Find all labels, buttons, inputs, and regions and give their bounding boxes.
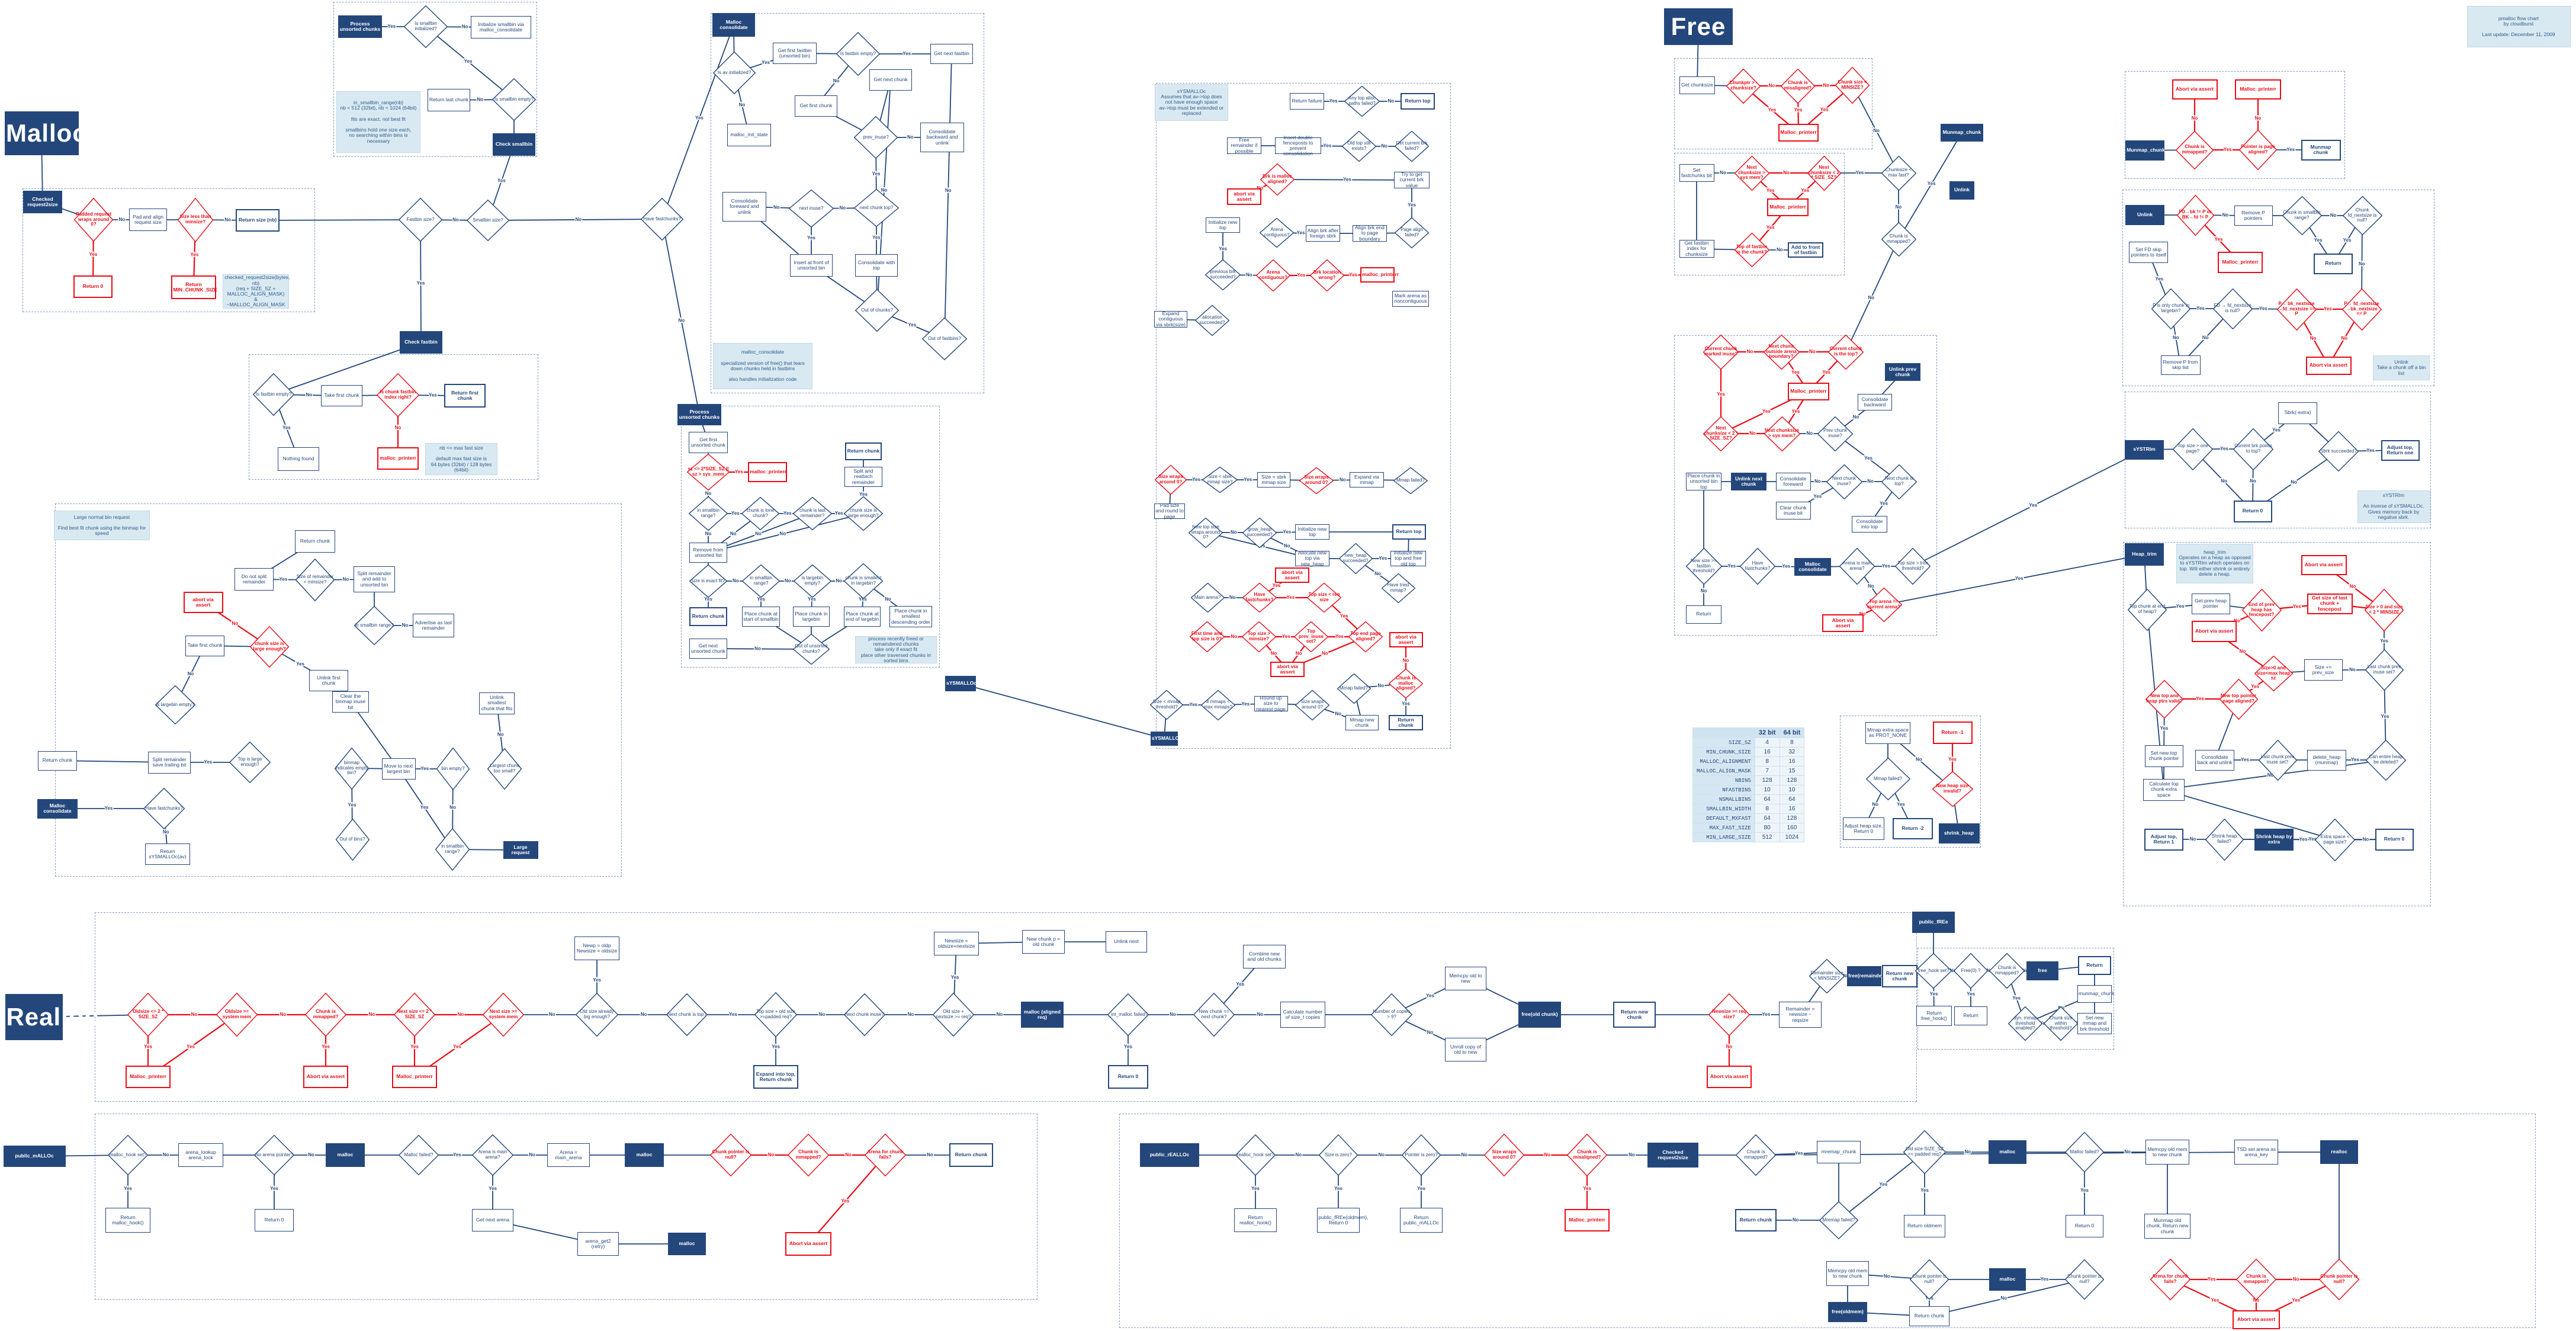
node-label: Split remainder and add to unsorted bin <box>354 570 394 588</box>
node-label: Remove from unsorted list <box>690 547 727 559</box>
decision-malloc-failed: Malloc failed? <box>2065 1132 2104 1172</box>
node-return-top: Return top <box>1401 93 1435 110</box>
svg-text:Yes: Yes <box>731 511 740 516</box>
node-pad-and-align-request-size: Pad and align request size <box>129 209 167 231</box>
decision-out-of-fastbins: Out of fastbins? <box>922 317 967 360</box>
node-label: binmap indicates empty bin? <box>335 760 369 777</box>
node-label: Chunk is misaligned? <box>1567 1149 1607 1160</box>
node-label: Calculate number of size_t copies <box>1281 1009 1324 1021</box>
node-label: Chunk in smallbin range? <box>2282 210 2321 221</box>
node-label: Munmap old chunk, Return new chunk <box>2145 1217 2190 1235</box>
constant-name: MIN_CHUNK_SIZE <box>1693 748 1755 757</box>
node-initialize-new-top: Initialize new top <box>1295 524 1329 540</box>
svg-text:No: No <box>1814 479 1821 484</box>
title-free: Free <box>1664 8 1733 45</box>
node-label: Unlink prev chunk <box>1886 366 1920 378</box>
svg-text:Yes: Yes <box>695 115 704 120</box>
node-label: next inuse? <box>789 206 834 212</box>
node-label: Malloc_printerr <box>393 1073 435 1080</box>
node-label: Get first fastbin (unsorted bin) <box>773 47 815 59</box>
node-place-chunk-in-largebin: Place chunk in largebin <box>793 607 830 627</box>
node-unlink-smallest-chunk-that-fits: Unlink smallest chunk that fits <box>479 692 515 714</box>
decision-free-0: Free(0) ? <box>1954 953 1988 989</box>
decision-int-malloc-failed: _int_malloc failed? <box>1107 993 1149 1036</box>
node-label: Return <box>2079 962 2110 968</box>
decision-can-entire-heap-be-deleted: Can entire heap be deleted? <box>2366 740 2406 781</box>
node-label: Mmap failed? <box>1393 477 1428 484</box>
node-label: _int_malloc failed? <box>1107 1012 1148 1018</box>
svg-text:Yes: Yes <box>270 1186 278 1191</box>
node-free-old-chunk: free(old chunk) <box>1518 1002 1561 1028</box>
svg-text:No: No <box>163 1152 169 1157</box>
decision-chunk-is-mmapped: Chunk is mmapped? <box>2176 131 2214 169</box>
node-expand-into-top-return-chunk: Expand into top, Return chunk <box>753 1065 798 1089</box>
svg-text:Yes: Yes <box>2080 1188 2089 1193</box>
svg-text:Yes: Yes <box>348 802 356 807</box>
decision-old-size-nextsize-req: Old size + nextsize >= req? <box>933 993 974 1037</box>
svg-text:Yes: Yes <box>841 1198 850 1204</box>
decision-next-chunk-top: next chunk top? <box>854 189 899 227</box>
svg-text:Yes: Yes <box>1782 564 1790 569</box>
node-label: sYSMALLOc Assumes that av->top does not … <box>1156 88 1226 117</box>
decision-size-sbrk-mmap-size: Size < sbrk mmap size? <box>1202 467 1238 493</box>
node-label: Malloc_printerr <box>127 1073 169 1080</box>
node-allocate-new-top-via-new-heap: Allocate new top via new_heap <box>1295 551 1329 566</box>
svg-text:No: No <box>2291 480 2297 485</box>
svg-text:Yes: Yes <box>1408 203 1416 208</box>
constant-value: 4 <box>1755 738 1780 748</box>
node-label: malloc_printerr <box>749 469 786 475</box>
node-label: Main arena? <box>1191 595 1225 601</box>
node-align-brk-after-foreign-sbrk: Align brk after foreign sbrk <box>1306 225 1340 242</box>
decision-chunkptr-chunksize: Chunkptr > -chunksize? <box>1726 69 1761 104</box>
node-label: malloc_printerr <box>1361 271 1393 278</box>
decision-size-mmap-threshold: Size < mmap threshold? <box>1150 690 1183 720</box>
decision-size-wraps-around-0: Size wraps around 0? <box>1299 467 1334 494</box>
node-label: Process unsorted chunks <box>678 409 720 421</box>
node-split-remainder-save-trailing-bit: Split remainder save trailing bit <box>148 752 191 774</box>
node-label: Remove P pointers <box>2235 210 2272 222</box>
svg-text:Yes: Yes <box>1343 177 1351 182</box>
svg-text:No: No <box>1544 1152 1550 1157</box>
decision-size-of-remainder-minsize: Size of remainder < minsize? <box>295 559 335 601</box>
svg-text:Yes: Yes <box>1766 225 1775 230</box>
decision-chunk-is-misaligned: Chunk is misaligned? <box>1567 1134 1607 1176</box>
svg-text:Yes: Yes <box>2215 237 2223 242</box>
svg-text:Yes: Yes <box>322 1044 330 1050</box>
node-label: P is only chunk in largebin? <box>2151 303 2190 314</box>
note-checked-request2size-bytes-nb-req-size-s: checked_request2size(bytes, nb) (req + S… <box>223 274 289 309</box>
node-label: Fastbin size? <box>399 217 442 223</box>
node-label: Malloc_printerr <box>2236 86 2279 92</box>
node-label: Chunk is mmapped? <box>2236 1274 2276 1285</box>
node-size-sbrk-mmap-size: Size = sbrk mmap size <box>1257 472 1290 488</box>
node-unlink: Unlink <box>1949 181 1974 200</box>
svg-text:No: No <box>2310 335 2317 341</box>
svg-text:Yes: Yes <box>1583 1186 1591 1191</box>
node-abort-via-assert: abort via assert <box>184 592 223 613</box>
node-label: Brk is malloc aligned? <box>1260 174 1295 185</box>
svg-text:Yes: Yes <box>489 1186 497 1191</box>
node-return-chunk: Return chunk <box>689 607 727 626</box>
node-label: Mmap failed? <box>1866 776 1910 782</box>
svg-text:Yes: Yes <box>191 252 199 257</box>
node-label: Return 0 <box>2376 836 2413 842</box>
svg-text:Yes: Yes <box>2160 726 2169 731</box>
node-label: Is fastbin empty? <box>836 51 879 57</box>
svg-text:No: No <box>2359 261 2365 267</box>
svg-text:Yes: Yes <box>1297 272 1305 278</box>
node-label: Return oldmem <box>1904 1223 1944 1229</box>
node-malloc-aligned-req: malloc (aligned req) <box>1021 1002 1064 1028</box>
note-pmalloc-flow-chart-by-cloudburst-last-up: pmalloc flow chart by cloudburst Last up… <box>2467 6 2571 47</box>
decision-new-top-and-heap-ptrs-valid: New top and heap ptrs valid? <box>2145 680 2183 719</box>
svg-text:No: No <box>163 829 169 835</box>
note-unlink-take-a-chunk-off-a-bin-list: Unlink Take a chunk off a bin list <box>2373 355 2430 380</box>
node-label: Place chunk in largebin <box>794 611 829 623</box>
node-return-oldmem: Return oldmem <box>1904 1215 1945 1237</box>
node-return-last-chunk: Return last chunk <box>428 89 470 111</box>
decision-arena-for-chunk-fails: Arena for chunk fails? <box>2150 1259 2190 1300</box>
svg-text:No: No <box>755 531 762 536</box>
node-do-not-split-remainder: Do not split remainder <box>235 568 274 591</box>
node-return-realloc-hook: Return realloc_hook() <box>1234 1208 1277 1232</box>
node-label: Is smallbin initialized? <box>404 21 447 32</box>
decision-next-chunk-is-top: Next chunk is top? <box>666 993 708 1036</box>
node-label: P→ fd_nextsize →bk_nextsize == P <box>2342 301 2381 317</box>
node-label: Last chunk prev inuse set? <box>2365 664 2403 675</box>
node-return-free-hook: Return free_hook() <box>1916 1006 1952 1026</box>
svg-text:Yes: Yes <box>1920 1188 1929 1193</box>
node-malloc: malloc <box>1989 1140 2026 1164</box>
decision-chunk-is-mmapped: Chunk is mmapped? <box>1881 222 1916 256</box>
decision-is-fastbin-empty: Is fastbin empty? <box>253 373 294 416</box>
svg-text:Yes: Yes <box>1244 477 1252 482</box>
decision-new-size-fastbin-threshold: New size >= fastbin threshold? <box>1686 548 1722 585</box>
node-public-malloc: public_mALLOc <box>4 1146 66 1167</box>
node-free-remainder-if-possible: Free remainder if possible <box>1227 137 1261 154</box>
node-label: Size wraps around 0? <box>1155 474 1187 485</box>
constant-value: 64 <box>1780 795 1804 804</box>
svg-text:No: No <box>641 1012 647 1017</box>
svg-text:Yes: Yes <box>1349 272 1357 277</box>
node-label: pmalloc flow chart by cloudburst Last up… <box>2469 15 2568 39</box>
svg-text:Yes: Yes <box>420 766 429 771</box>
node-place-chunk-at-end-of-largebin: Place chunk at end of largebin <box>844 607 881 627</box>
constant-value: 80 <box>1755 823 1780 833</box>
svg-text:No: No <box>705 531 712 536</box>
node-label: Nothing found <box>278 456 318 462</box>
node-label: P→ bk_nextsize →fd_nextsize == P <box>2277 301 2316 317</box>
decision-top-size-one-page: Top size > one page? <box>2173 428 2213 470</box>
svg-text:Yes: Yes <box>497 178 506 183</box>
decision-new-top-size-wraps-around-0: New top size wraps around 0? <box>1189 518 1223 548</box>
node-shrink-heap-by-extra: Shrink heap by extra <box>2254 829 2294 851</box>
malloc-flowchart-canvas: NoNoYesYesNoYesYesNoYesNoNoYesNoYesNoYes… <box>0 0 2576 1331</box>
decision-in-smallbin-range: in smallbin range? <box>354 606 394 645</box>
node-label: in smallbin range? <box>435 843 470 855</box>
node-label: abort via assert <box>1271 663 1303 675</box>
node-label: Get next fastbin <box>931 50 972 57</box>
node-label: Align brk after foreign sbrk <box>1306 227 1340 239</box>
node-label: Mark arena as noncontiguous <box>1393 293 1428 304</box>
node-label: Prev chunk inuse? <box>1817 428 1853 439</box>
table-row: MAX_FAST_SIZE80160 <box>1693 823 1804 833</box>
node-label: Get first chunk <box>795 102 836 109</box>
constant-name: MALLOC_ALIGNMENT <box>1693 757 1755 766</box>
node-label: Large normal bin request Find best fit c… <box>56 514 148 537</box>
node-malloc: malloc <box>326 1143 365 1167</box>
node-free: free <box>2026 961 2058 980</box>
node-label: Mremap failed? <box>1819 1217 1858 1224</box>
svg-text:No: No <box>1726 1044 1733 1050</box>
node-label: Next chunk inuse? <box>844 1012 885 1018</box>
node-new-chunk-p-old-chunk: New chunk p = old chunk <box>1022 930 1065 954</box>
node-label: Old size already big enough? <box>576 1009 618 1020</box>
node-label: Set fastchunks bit <box>1680 167 1714 179</box>
node-check-fastbin: Check fastbin <box>400 331 442 354</box>
svg-text:Yes: Yes <box>1864 456 1872 461</box>
node-munmap-chunk: Munmap_chunk <box>2125 140 2164 161</box>
decision-in-smallbin-range: in smallbin range? <box>689 496 728 531</box>
node-label: Size wraps around 0? <box>1295 699 1329 710</box>
node-label: Place chunk in unsorted bin top <box>1687 473 1721 490</box>
node-label: Arena contiguous? <box>1256 270 1290 281</box>
svg-text:No: No <box>1867 479 1874 484</box>
node-abort-via-assert: abort via assert <box>1270 662 1305 677</box>
constant-name: NSMALLBINS <box>1693 795 1755 804</box>
constant-value: 7 <box>1755 766 1780 776</box>
decision-allocation-succeeded: allocation succeeded? <box>1195 305 1229 336</box>
node-label: Size of remainder < minsize? <box>295 574 334 585</box>
decision-oldsize-2-size-sz: Oldsize <= 2 * SIZE_SZ <box>127 993 169 1037</box>
decision-get-current-brk-failed: Get current brk failed? <box>1395 131 1429 162</box>
node-label: Size>0 and size<max heap sz <box>2254 665 2292 682</box>
node-return-new-chunk: Return new chunk <box>1882 965 1917 987</box>
node-malloc-consolidate: Malloc consolidate <box>37 799 78 819</box>
constant-value: 512 <box>1755 833 1780 842</box>
node-label: Get next unsorted chunk <box>690 643 727 655</box>
node-malloc-printerr: Malloc_printerr <box>2218 252 2263 273</box>
node-process-unsorted-chunks: Process unsorted chunks <box>338 15 382 38</box>
decision-chunk-is-last-remainder: chunk is last remainder? <box>793 497 832 530</box>
node-label: Pointer is page aligned? <box>2239 144 2276 155</box>
node-mmap-extra-space-as-prot-none: Mmap extra space as PROT_NONE <box>1865 722 1910 744</box>
node-label: Abort via assert <box>2302 562 2345 568</box>
svg-text:No: No <box>576 217 582 222</box>
decision-previous-brk-succeeded: previous brk succeeded? <box>1205 259 1241 290</box>
svg-text:No: No <box>1257 1012 1264 1017</box>
decision-chunk-is-mmapped: Chunk is mmapped? <box>1736 1134 1776 1176</box>
node-label: Insert double fenceposts to prevent cons… <box>1276 134 1321 158</box>
node-label: malloc <box>1990 1276 2025 1282</box>
node-label: Size > 0 and size < 2 * MINSIZE <box>2365 604 2403 615</box>
node-label: Advertise as last remainder <box>413 620 453 631</box>
svg-text:Yes: Yes <box>144 1044 152 1050</box>
node-heap-trim: Heap_trim <box>2125 543 2164 566</box>
svg-text:No: No <box>907 134 914 140</box>
node-label: Next chunksize < 2 * SIZE_SZ? <box>1703 425 1739 442</box>
node-label: Pointer is zero? <box>1402 1152 1440 1159</box>
node-public-realloc: public_rEALLOc <box>1140 1143 1199 1167</box>
node-label: shrink_heap <box>1939 830 1978 836</box>
svg-text:No: No <box>678 318 685 323</box>
node-label: Newsize >= req size? <box>1708 1009 1749 1020</box>
svg-text:No: No <box>449 804 456 810</box>
node-unlink-next-chunk: Unlink next chunk <box>1731 473 1766 490</box>
decision-newsize-req-size: Newsize >= req size? <box>1708 993 1750 1036</box>
node-label: Chunksize < max fast? <box>1881 167 1916 178</box>
decision-last-chunk-prev-inuse-set: Last chunk prev inuse set? <box>2365 649 2404 691</box>
decision-next-chunksize-sys-mem: Next chunksize > sys mem? <box>1764 416 1800 451</box>
decision-end-of-prev-heap-has-fencepost: End of prev heap has fencepost? <box>2242 589 2282 631</box>
node-label: new_heap succeeded? <box>1339 553 1373 564</box>
decision-have-fastchunks: Have fastchunks? <box>641 198 683 240</box>
svg-text:Yes: Yes <box>453 1044 461 1050</box>
node-label: Chunkptr > -chunksize? <box>1726 80 1761 91</box>
decision-chunk-pointer-is-null: Chunk pointer is null? <box>1910 1259 1949 1300</box>
node-label: malloc <box>625 1152 663 1158</box>
node-label: Set FD skip pointers to itself <box>2129 246 2167 258</box>
node-process-unsorted-chunks: Process unsorted chunks <box>677 404 721 425</box>
node-label: Malloc_printerr <box>2219 259 2261 265</box>
node-return-0: Return 0 <box>255 1209 294 1231</box>
node-consolidate-with-top: Consolidate with top <box>855 254 898 277</box>
svg-text:Yes: Yes <box>1251 1186 1260 1191</box>
node-label: Abort via assert <box>1708 1073 1750 1080</box>
node-label: Chunk size within threshold? <box>2044 1015 2078 1032</box>
node-unlink-first-chunk: Unlink first chunk <box>309 670 348 691</box>
svg-text:No: No <box>1388 98 1395 104</box>
node-label: Consolidate back and unlink <box>2196 754 2233 766</box>
node-label: Chunk is mmapped? <box>305 1009 346 1020</box>
node-label: TSD set arena as arena_key <box>2235 1146 2277 1158</box>
svg-text:No: No <box>1629 1152 1635 1157</box>
decision-current-chunk-marked-inuse: Current chunk marked inuse? <box>1703 335 1739 370</box>
node-label: Unroll copy of old to new <box>1446 1044 1485 1056</box>
decision-malloc-failed: Malloc failed? <box>399 1135 439 1175</box>
svg-text:No: No <box>1427 1030 1434 1035</box>
decision-chunksize-max-fast: Chunksize < max fast? <box>1881 156 1916 191</box>
node-label: free(oldmem) <box>1829 1308 1866 1315</box>
node-label: Abort via assert <box>2234 1316 2279 1323</box>
node-label: Unlink smallest chunk that fits <box>480 694 514 712</box>
node-label: Place chunk at start of smallbin <box>743 611 779 623</box>
node-shrink-heap: shrink_heap <box>1939 823 1980 843</box>
decision-remainder-size-minsize: Remainder size < MINSIZE? <box>1809 959 1845 993</box>
node-label: public_fREe(oldmem), Return 0 <box>1318 1214 1358 1226</box>
decision-arena-for-chunk-fails: Arena for chunk fails? <box>865 1134 906 1176</box>
svg-text:No: No <box>1777 247 1783 252</box>
svg-text:Yes: Yes <box>1297 230 1305 236</box>
svg-text:No: No <box>1793 1217 1799 1223</box>
node-label: checked_request2size(bytes, nb) (req + S… <box>224 274 288 308</box>
node-unlink: Unlink <box>2125 205 2164 225</box>
decision-chunk-is-mmapped: Chunk is mmapped? <box>2236 1259 2276 1300</box>
node-arena-lookup-arena-lock: arena_lookup arena_lock <box>178 1143 223 1167</box>
decision-is-av-initialized: Is av initialized? <box>713 52 756 94</box>
node-label: allocation succeeded? <box>1195 315 1229 326</box>
node-return-size-nb: Return size (nb) <box>236 209 280 232</box>
node-adjust-top-return-one: Adjust top, Return one <box>2381 440 2420 461</box>
malloc-constants-table: 32 bit64 bitSIZE_SZ48MIN_CHUNK_SIZE1632M… <box>1692 727 1804 842</box>
decision-is-chunk-fastbin-index-right: Is chunk fastbin index right? <box>377 373 419 417</box>
svg-text:No: No <box>839 206 846 211</box>
svg-text:No: No <box>2341 335 2348 341</box>
node-label: Is smallbin empty? <box>492 97 535 103</box>
svg-text:No: No <box>1720 170 1726 175</box>
decision-chunk-is-lone-chunk: chunk is lone chunk? <box>741 497 779 530</box>
constant-value: 8 <box>1780 738 1804 748</box>
svg-text:No: No <box>2173 335 2179 340</box>
node-label: Current brk points to top? <box>2233 443 2273 454</box>
node-clear-the-binmap-inuse-bit: Clear the binmap inuse bit <box>332 691 369 713</box>
node-calculate-number-of-size-t-copies: Calculate number of size_t copies <box>1280 1002 1325 1028</box>
node-initialize-new-top: Initialize new top <box>1206 217 1240 233</box>
svg-text:Yes: Yes <box>1928 181 1936 186</box>
decision-chunk-is-mmapped: Chunk is mmapped? <box>788 1134 829 1176</box>
node-label: Expand via mmap <box>1350 474 1383 486</box>
node-label: Return 0 <box>75 283 111 290</box>
node-label: New size >= fastbin threshold? <box>1686 558 1722 575</box>
node-label: Return 0 <box>2066 1223 2103 1229</box>
node-return-0: Return 0 <box>2066 1215 2103 1237</box>
decision-prev-chunk-inuse: Prev chunk inuse? <box>1817 416 1853 451</box>
decision-mmaps-max-mmaps: # mmaps < max mmaps? <box>1201 690 1235 720</box>
node-advertise-as-last-remainder: Advertise as last remainder <box>413 614 454 637</box>
node-label: Pad and align request size <box>130 214 166 226</box>
node-take-first-chunk: Take first chunk <box>185 636 224 656</box>
svg-text:No: No <box>1170 1012 1176 1017</box>
node-return: Return <box>1686 605 1721 624</box>
node-sbrk-extra: Sbrk(-extra) <box>2278 402 2317 424</box>
node-label: Malloc consolidate <box>713 19 754 31</box>
node-free-oldmem: free(oldmem) <box>1828 1302 1867 1322</box>
node-return-chunk: Return chunk <box>845 442 882 460</box>
node-label: malloc_init_state <box>728 132 770 138</box>
svg-text:No: No <box>1335 711 1341 717</box>
constant-name: DEFAULT_MXFAST <box>1693 814 1755 823</box>
table-row: MIN_LARGE_SIZE5121024 <box>1693 833 1804 842</box>
node-label: Initialize new top and free old top <box>1391 550 1425 567</box>
constant-value: 64 <box>1755 814 1780 823</box>
node-label: Return MIN_CHUNK_SIZE <box>172 281 214 293</box>
node-label: Next chunksize > sys mem? <box>1735 165 1769 181</box>
svg-text:No: No <box>2000 1295 2007 1301</box>
node-label: in smallbin range? <box>742 575 779 586</box>
svg-text:Yes: Yes <box>296 662 304 667</box>
table-row: MALLOC_ALIGNMENT816 <box>1693 757 1804 766</box>
svg-text:Yes: Yes <box>807 235 815 240</box>
decision-sz-2-size-sz-sz-sys-mem: sz <= 2*SIZE_SZ || sz > sys_mem <box>687 454 730 490</box>
node-label: Chunk size < MINSIZE? <box>1835 79 1870 91</box>
node-label: sYSMALLOc <box>946 680 975 687</box>
node-label: Chunk pointer is null? <box>1910 1274 1948 1285</box>
node-label: Munmap chunk <box>2302 144 2339 156</box>
node-label: Consolidate foreward <box>1777 476 1810 488</box>
svg-text:Yes: Yes <box>2299 836 2308 842</box>
decision-chunk-is-smallest-in-largebin: chunk is smallest in largebin? <box>844 563 883 599</box>
node-label: Consolidate into top <box>1852 518 1887 530</box>
constant-value: 16 <box>1780 804 1804 814</box>
svg-text:Yes: Yes <box>2211 1297 2220 1303</box>
node-remainder-newsize-reqsize: Remainder = newsize − reqsize <box>1779 1002 1822 1028</box>
node-label: Chunk is mmapped? <box>1989 965 2025 976</box>
decision-no-arena-pointer: No arena pointer? <box>254 1135 294 1175</box>
node-label: nb <= max fast size default max fast siz… <box>426 445 496 473</box>
node-consolidate-backward: Consolidate backward <box>1858 394 1892 410</box>
node-insert-double-fenceposts-to-prevent-cons: Insert double fenceposts to prevent cons… <box>1275 137 1321 154</box>
